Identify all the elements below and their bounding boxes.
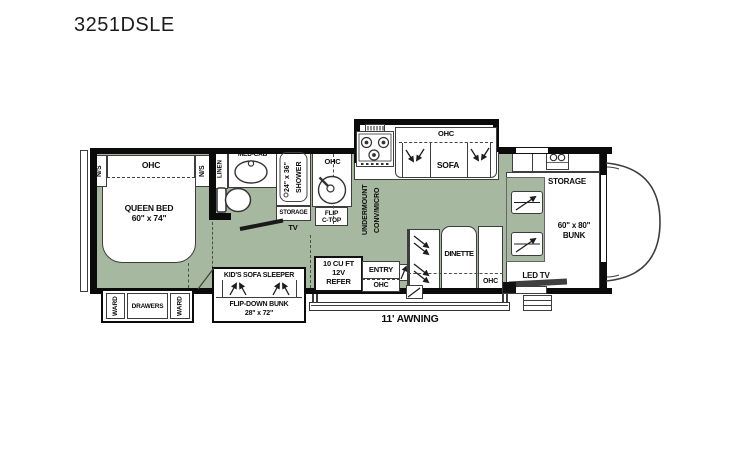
dinette-slide-line [408, 273, 503, 274]
dinette-bench-left [407, 229, 440, 291]
led-tv-label: LED TV [511, 271, 561, 280]
rear-slide-rail [80, 150, 88, 292]
dinette-ohc-label: OHC [478, 278, 503, 286]
entry-door-panel [399, 264, 408, 281]
kids-slide-line-right [310, 235, 311, 288]
bedroom-ohc-label: OHC [121, 161, 181, 171]
med-cab-label: MED-CAB [228, 151, 277, 158]
bathroom-wall-stub [209, 213, 231, 220]
awning-bracket-right [502, 294, 504, 302]
flip-down-bunk-size-label: 28" x 72" [214, 310, 304, 318]
model-title: 3251DSLE [74, 14, 175, 37]
sofa-label: SOFA [418, 161, 478, 171]
bunk-size-label: 60" x 80" [544, 221, 604, 230]
cab-step-line-2 [524, 305, 551, 306]
tv-shelf [502, 286, 547, 294]
linen-label: LINEN [213, 150, 228, 189]
kids-sleeper-label: KID'S SOFA SLEEPER [214, 272, 304, 280]
kids-sofa-arm-right [296, 280, 297, 297]
awning-inner-line [311, 305, 508, 306]
top-wall-right [494, 147, 612, 154]
ward-left-label: WARD [106, 293, 125, 319]
flip-label-2: C-TOP [315, 217, 348, 224]
undermount-label-2: CONV/MICRO [371, 167, 384, 253]
floorplan-canvas: 3251DSLE [0, 0, 731, 469]
ns-left-label: N/S [92, 155, 107, 187]
entry-ohc-label: OHC [362, 282, 400, 290]
kids-sofa-divider [216, 297, 302, 298]
sofa-arm-left [402, 143, 403, 178]
front-wall-top [600, 147, 607, 175]
sofa-arm-right [490, 143, 491, 178]
cab-steps [523, 295, 552, 311]
bed-slide-line [188, 263, 189, 288]
bunk-label: BUNK [544, 231, 604, 240]
refer-label-3: REFER [314, 278, 363, 287]
front-window [600, 175, 607, 262]
front-wall-bottom [600, 262, 607, 294]
drawers-label: DRAWERS [127, 303, 168, 310]
awning-label: 11' AWNING [360, 313, 460, 325]
bunk-step-upper [511, 191, 543, 214]
awning-bracket-left2 [316, 294, 318, 302]
ns-right-label: N/S [195, 155, 210, 187]
ward-right-label: WARD [170, 293, 190, 319]
kitchen-ohc-label: OHC [315, 158, 350, 167]
bath-storage-label: STORAGE [276, 210, 311, 217]
front-storage-label: STORAGE [537, 177, 597, 186]
cab-step-line-1 [524, 300, 551, 301]
entry-label: ENTRY [362, 266, 400, 275]
front-sink-box [546, 151, 569, 170]
dinette-label: DINETTE [441, 250, 477, 259]
flip-down-bunk-label: FLIP-DOWN BUNK [214, 301, 304, 309]
flip-label-1: FLIP [315, 210, 348, 217]
kids-sofa-arm-left [222, 280, 223, 297]
awning-bar [309, 302, 510, 311]
tv-label: TV [280, 224, 306, 233]
awning-bracket-right2 [506, 294, 508, 302]
range-cooktop [356, 131, 394, 167]
bunk-step-lower [511, 232, 543, 256]
shower-label: SHOWER [293, 152, 306, 202]
sofa-ohc-label: OHC [416, 130, 476, 139]
top-window [516, 147, 548, 154]
queen-bed-size-label: 60" x 74" [109, 214, 189, 224]
front-counter-divider-1 [532, 154, 533, 171]
front-cap-outline [606, 163, 660, 281]
awning-bracket-left [312, 294, 314, 302]
entry-step [406, 285, 423, 299]
